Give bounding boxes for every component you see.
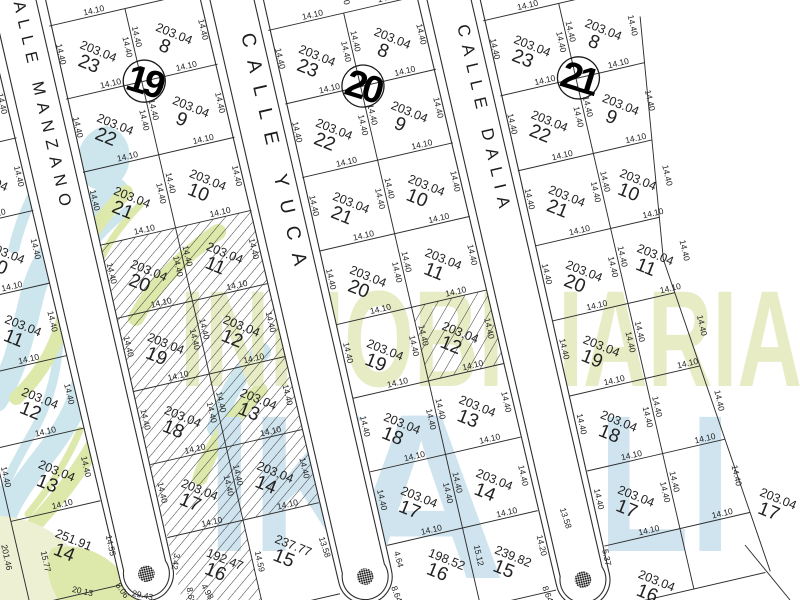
svg-text:8.68: 8.68	[185, 586, 198, 600]
